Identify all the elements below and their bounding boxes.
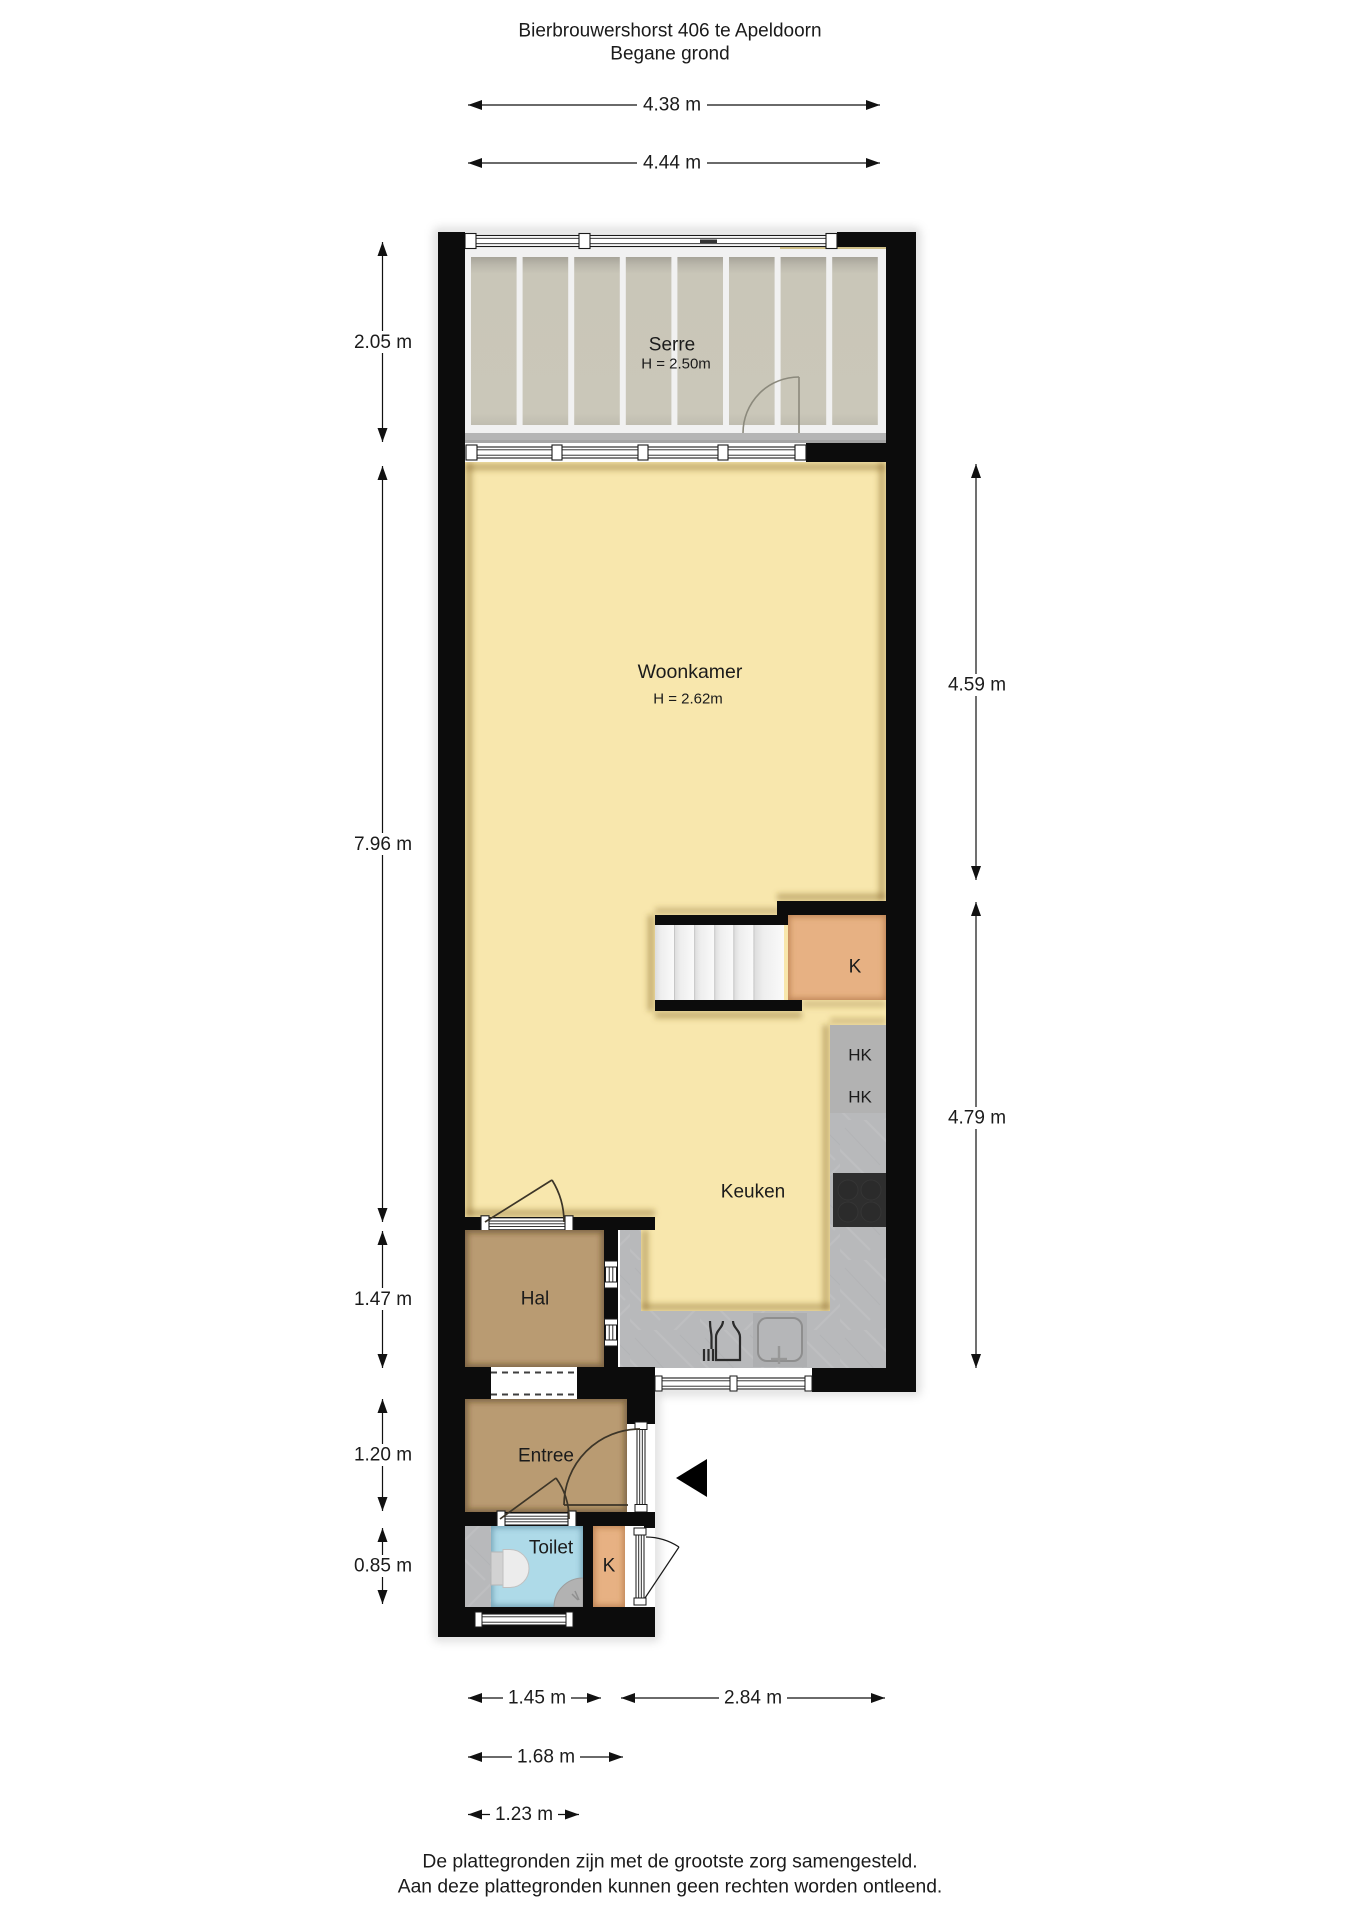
svg-text:1.45 m: 1.45 m xyxy=(508,1688,566,1709)
svg-text:Begane grond: Begane grond xyxy=(610,44,729,65)
svg-text:4.59 m: 4.59 m xyxy=(948,675,1006,696)
svg-text:1.23 m: 1.23 m xyxy=(495,1804,553,1825)
svg-text:0.85 m: 0.85 m xyxy=(354,1556,412,1577)
svg-text:7.96 m: 7.96 m xyxy=(354,834,412,855)
svg-text:De plattegronden zijn met de g: De plattegronden zijn met de grootste zo… xyxy=(422,1852,917,1873)
svg-text:1.68 m: 1.68 m xyxy=(517,1747,575,1768)
svg-text:1.47 m: 1.47 m xyxy=(354,1289,412,1310)
svg-text:Hal: Hal xyxy=(521,1289,550,1310)
svg-text:Aan deze plattegronden kunnen: Aan deze plattegronden kunnen geen recht… xyxy=(398,1877,943,1898)
svg-text:H = 2.50m: H = 2.50m xyxy=(641,356,711,373)
svg-text:4.44 m: 4.44 m xyxy=(643,153,701,174)
svg-text:4.38 m: 4.38 m xyxy=(643,95,701,116)
svg-text:2.05 m: 2.05 m xyxy=(354,332,412,353)
svg-text:HK: HK xyxy=(848,1046,872,1065)
svg-text:K: K xyxy=(603,1556,616,1577)
svg-text:1.20 m: 1.20 m xyxy=(354,1445,412,1466)
svg-text:Bierbrouwershorst 406 te Apeld: Bierbrouwershorst 406 te Apeldoorn xyxy=(518,21,821,42)
svg-text:2.84 m: 2.84 m xyxy=(724,1688,782,1709)
svg-text:Entree: Entree xyxy=(518,1446,574,1467)
svg-text:Serre: Serre xyxy=(649,335,695,356)
svg-text:4.79 m: 4.79 m xyxy=(948,1108,1006,1129)
svg-text:Woonkamer: Woonkamer xyxy=(638,661,743,683)
svg-text:HK: HK xyxy=(848,1088,872,1107)
svg-text:Keuken: Keuken xyxy=(721,1182,785,1203)
svg-text:K: K xyxy=(849,957,862,978)
svg-text:H = 2.62m: H = 2.62m xyxy=(653,691,723,708)
svg-text:Toilet: Toilet xyxy=(529,1538,574,1559)
